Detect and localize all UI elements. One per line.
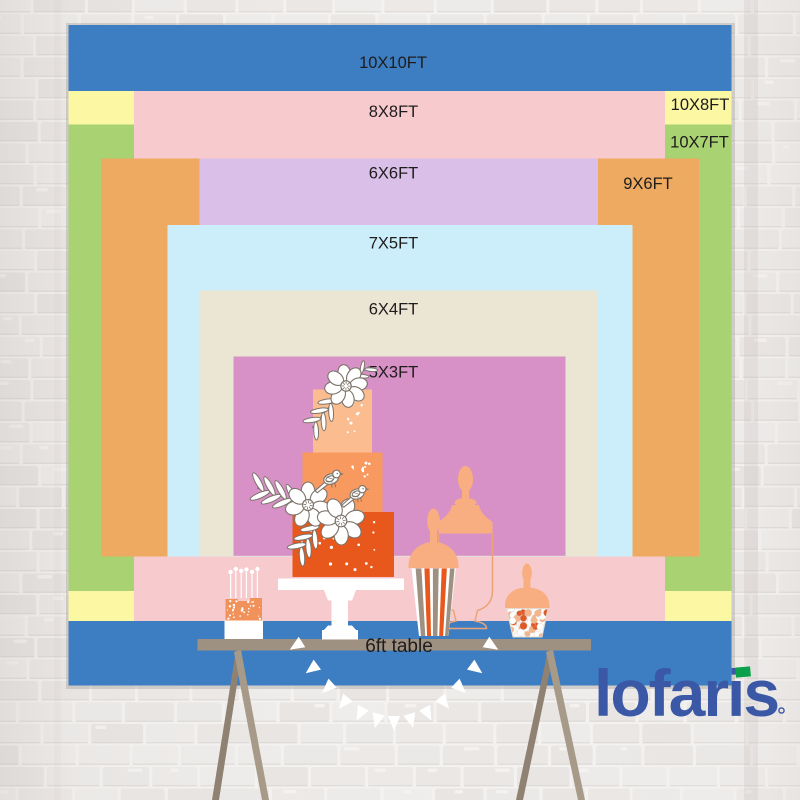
- svg-text:8X8FT: 8X8FT: [369, 103, 419, 121]
- svg-text:6X4FT: 6X4FT: [369, 301, 419, 319]
- svg-text:6ft table: 6ft table: [365, 636, 433, 657]
- svg-text:5X3FT: 5X3FT: [369, 364, 419, 382]
- svg-text:6X6FT: 6X6FT: [369, 165, 419, 183]
- svg-text:9X6FT: 9X6FT: [623, 175, 673, 193]
- svg-text:lofaris: lofaris: [594, 656, 778, 730]
- svg-text:7X5FT: 7X5FT: [369, 235, 419, 253]
- svg-text:10X10FT: 10X10FT: [359, 54, 427, 72]
- svg-text:10X8FT: 10X8FT: [671, 96, 730, 114]
- svg-text:10X7FT: 10X7FT: [670, 134, 729, 152]
